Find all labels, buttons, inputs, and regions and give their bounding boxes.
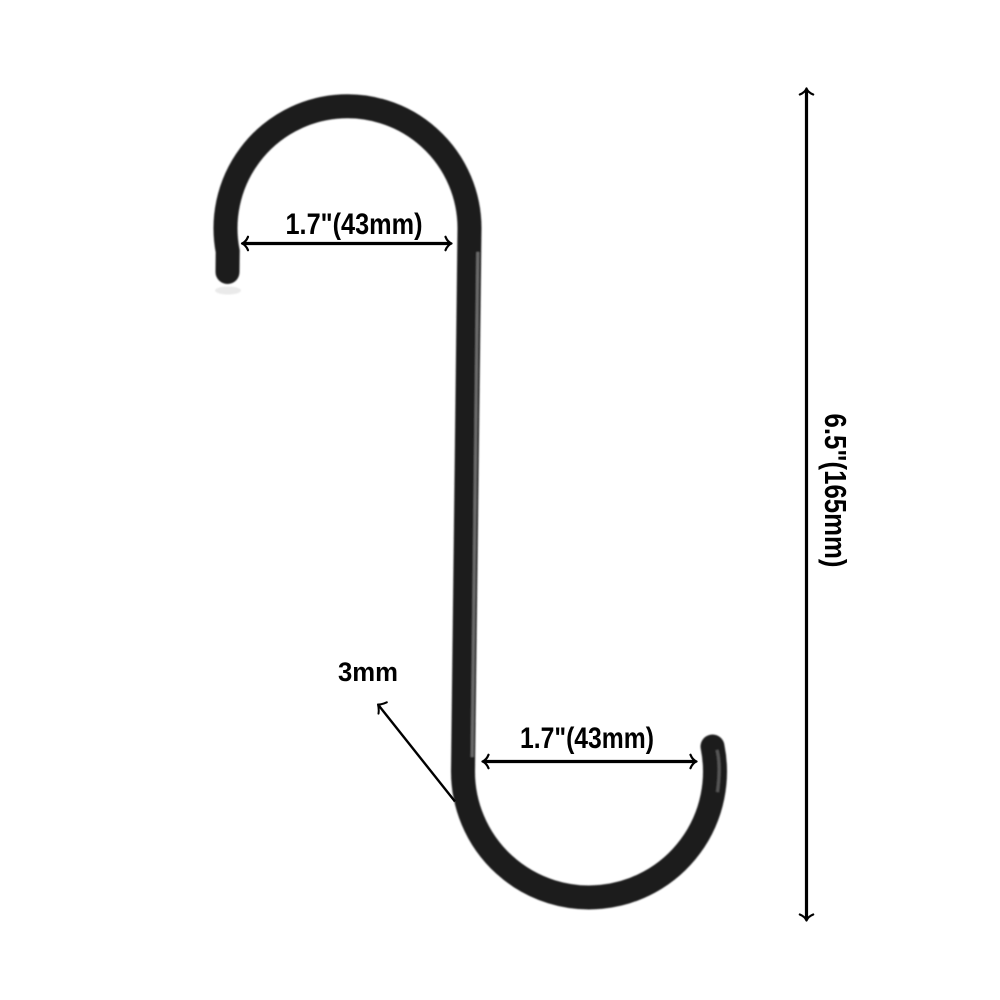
svg-text:1.7"(43mm): 1.7"(43mm) xyxy=(520,722,654,755)
svg-text:1.7"(43mm): 1.7"(43mm) xyxy=(286,208,423,241)
svg-text:6.5"(165mm): 6.5"(165mm) xyxy=(818,414,853,568)
svg-text:3mm: 3mm xyxy=(338,657,398,687)
